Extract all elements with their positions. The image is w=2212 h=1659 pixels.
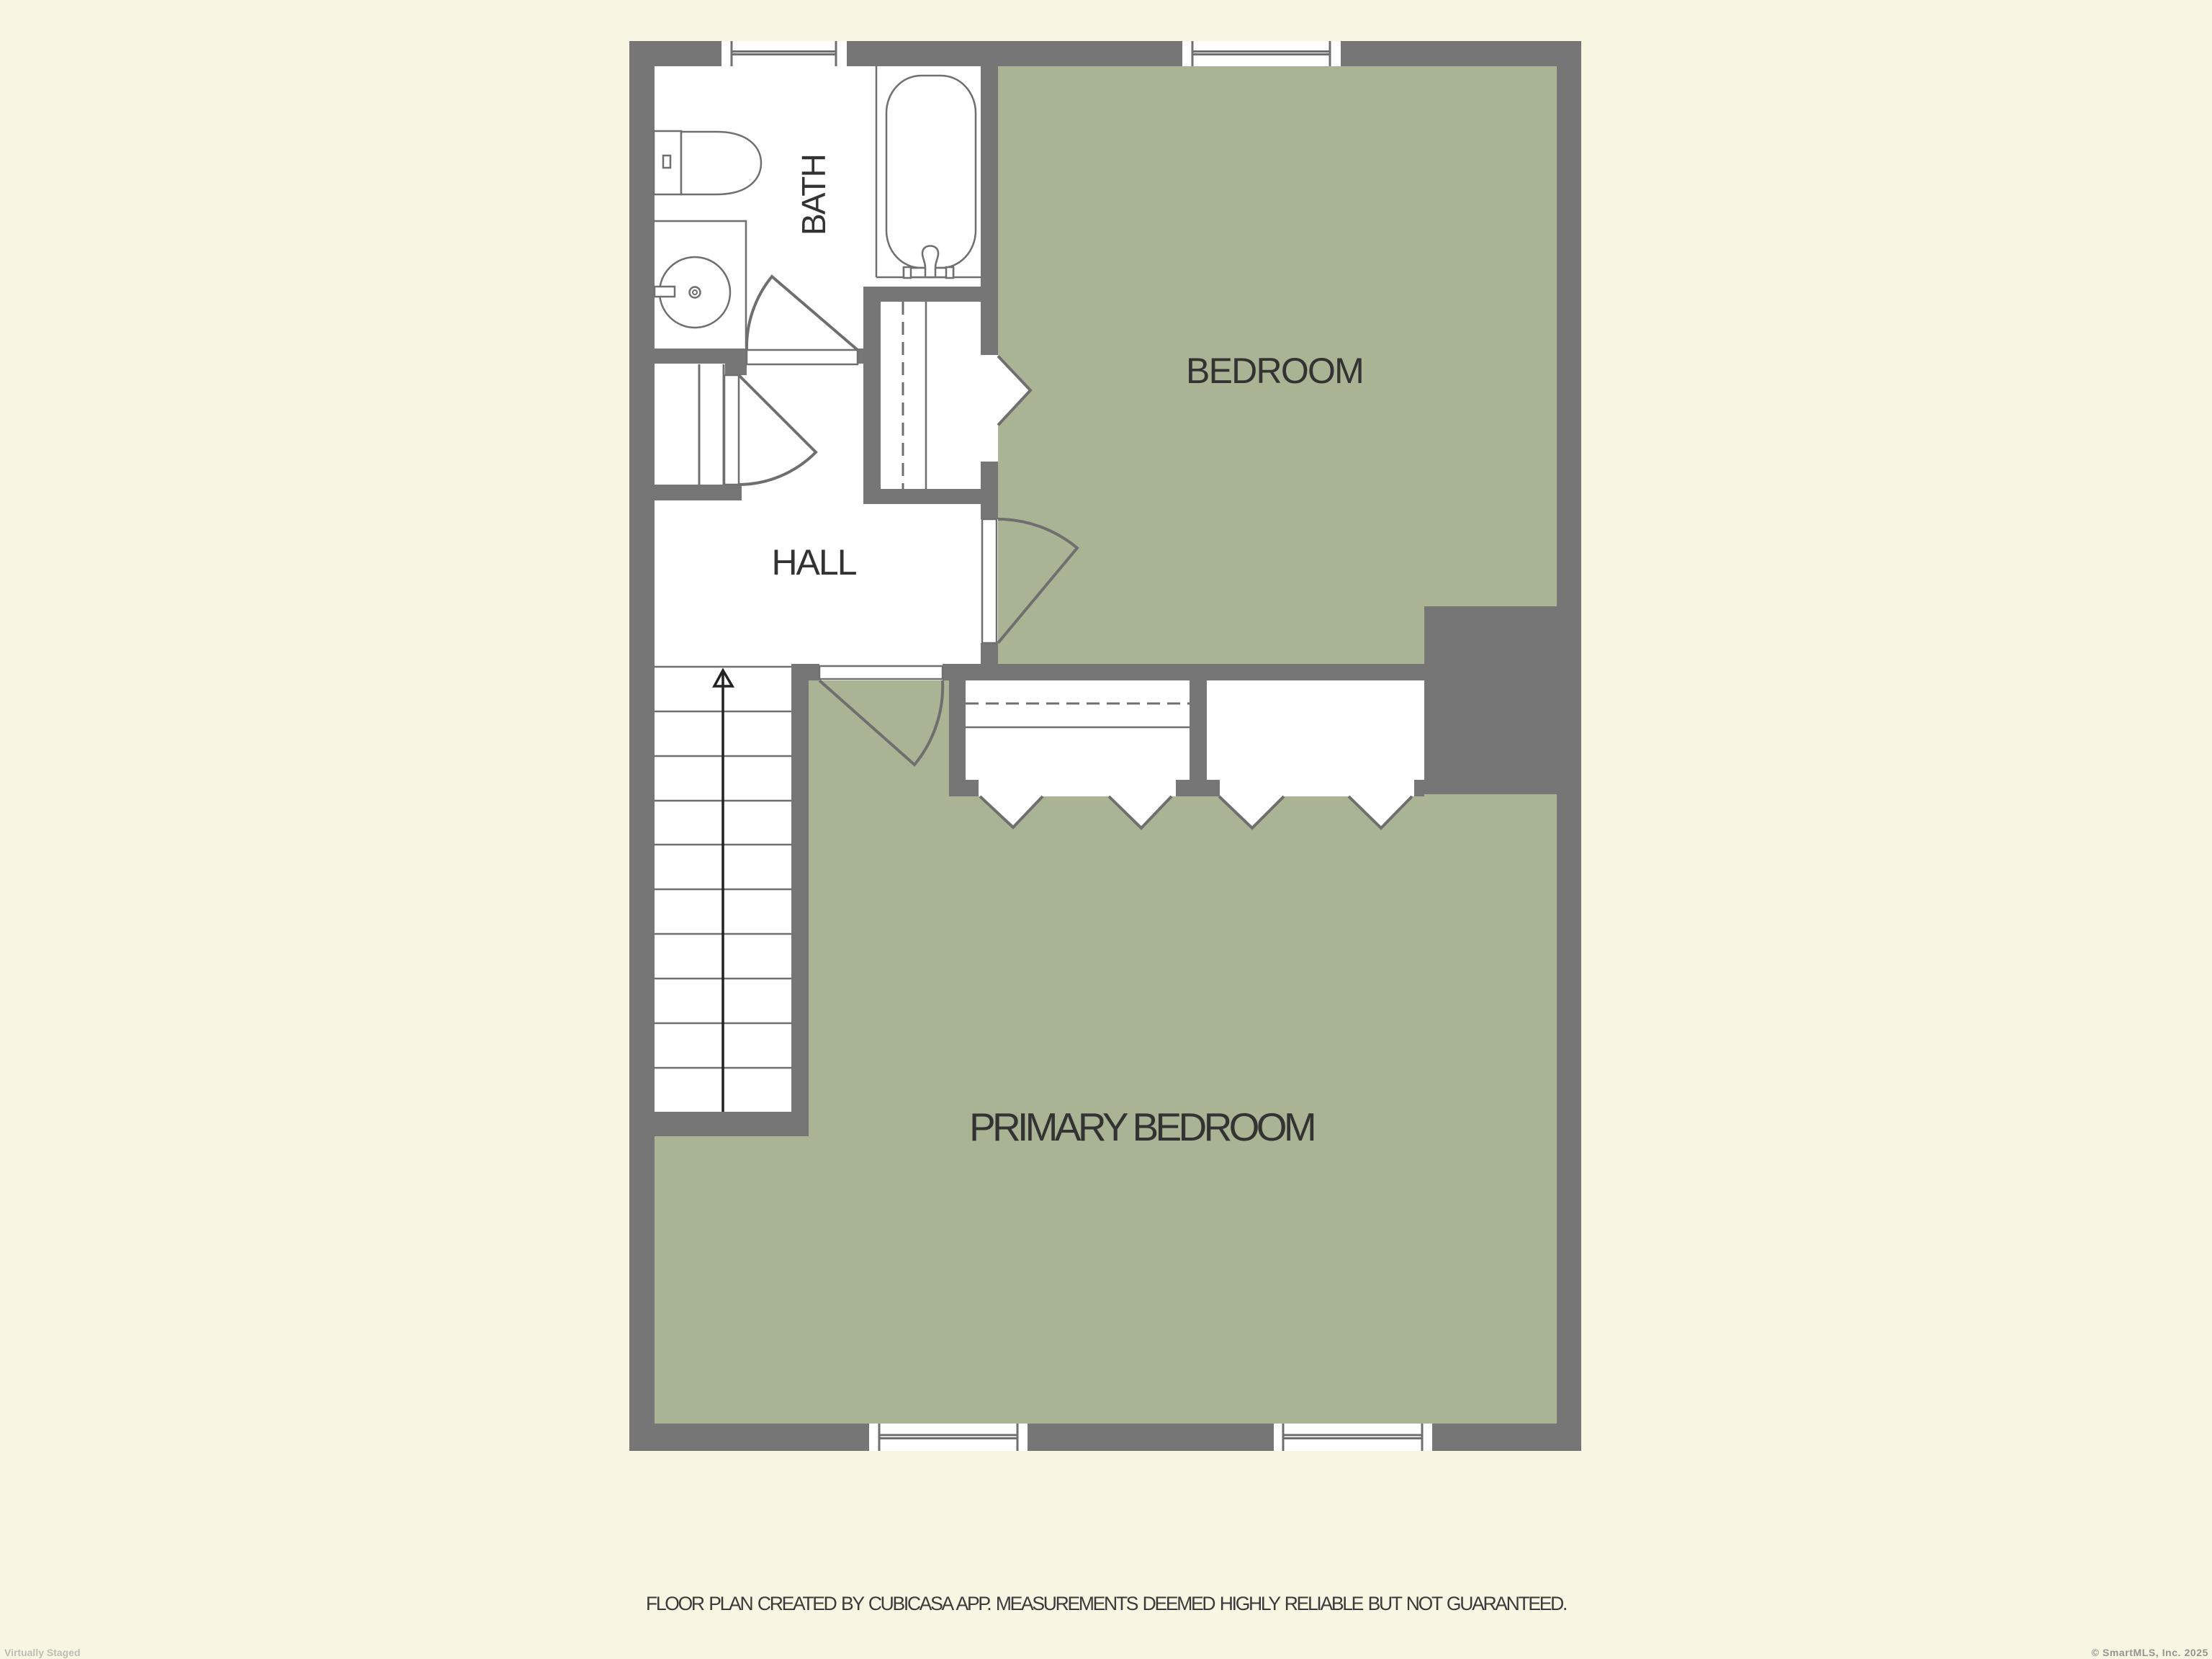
svg-text:FLOOR PLAN CREATED BY CUBICASA: FLOOR PLAN CREATED BY CUBICASA APP. MEAS… — [646, 1593, 1566, 1614]
svg-text:BEDROOM: BEDROOM — [1186, 351, 1363, 391]
svg-text:© SmartMLS, Inc. 2025: © SmartMLS, Inc. 2025 — [2092, 1647, 2208, 1658]
svg-text:HALL: HALL — [771, 542, 856, 583]
svg-text:PRIMARY BEDROOM: PRIMARY BEDROOM — [969, 1105, 1314, 1149]
svg-text:BATH: BATH — [795, 155, 832, 235]
svg-text:Virtually Staged: Virtually Staged — [4, 1647, 81, 1658]
